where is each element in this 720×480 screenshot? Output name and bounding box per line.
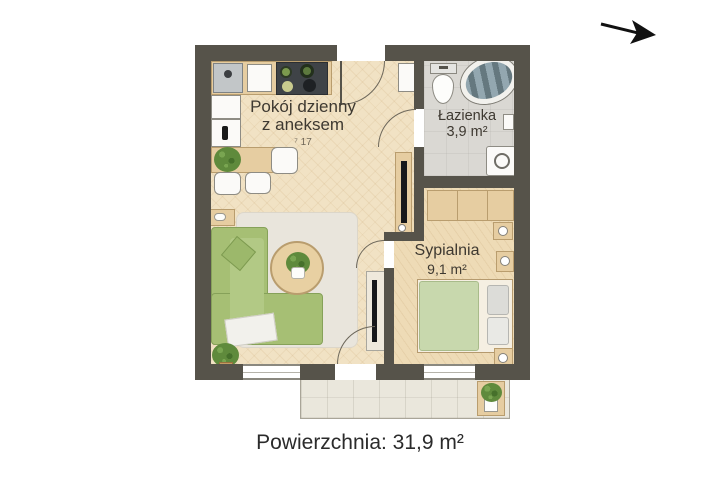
wall-bathroom-bottom [424, 176, 514, 188]
lamp-icon [498, 226, 508, 236]
burner-icon [282, 81, 293, 92]
bed-duvet [419, 281, 479, 351]
cutting-board [247, 64, 272, 92]
wardrobe-divider [457, 191, 458, 220]
balcony-door-opening [335, 364, 376, 380]
bed-pillow [487, 317, 509, 345]
wardrobe-divider [487, 191, 488, 220]
bathroom-label: Łazienka 3,9 m² [438, 108, 496, 140]
sink-faucet-icon [224, 70, 232, 78]
dining-chair [214, 172, 241, 195]
floor-plan-page: Pokój dzienny z aneksem ⁷ 17 Łazienka 3,… [0, 0, 720, 480]
bedroom-area: 9,1 m² [415, 260, 480, 278]
bedroom-label: Sypialnia 9,1 m² [415, 242, 480, 278]
total-area-caption: Powierzchnia: 31,9 m² [256, 431, 464, 455]
washer-door-icon [494, 153, 510, 169]
side-table-item [214, 213, 226, 221]
burner-icon [303, 79, 316, 92]
living-room-label: Pokój dzienny z aneksem ⁷ 17 [250, 98, 356, 152]
wall-right [514, 45, 530, 380]
living-room-name-line1: Pokój dzienny [250, 98, 356, 116]
plant-pot [291, 267, 305, 279]
living-room-window [243, 364, 300, 380]
living-room-area-note: ⁷ 17 [250, 134, 356, 152]
wall-corridor [414, 147, 424, 232]
wall-bathroom-left [414, 61, 424, 109]
tv-icon [401, 161, 407, 223]
lamp-icon [500, 256, 510, 266]
bathroom-area: 3,9 m² [438, 124, 496, 140]
entrance-opening [337, 45, 385, 61]
fridge-handle-icon [222, 126, 228, 140]
north-arrow-icon [598, 14, 660, 52]
kitchen-sink [213, 63, 243, 93]
bedroom-window [424, 364, 475, 380]
wall-stub [384, 232, 424, 241]
bed-pillow [487, 285, 509, 315]
bathroom-wall-cabinet [503, 114, 514, 130]
table-plant [214, 147, 241, 172]
bedroom-name: Sypialnia [415, 242, 480, 260]
wall-left [195, 45, 211, 380]
dining-chair [245, 172, 271, 194]
burner-icon [280, 66, 292, 78]
living-room-name-line2: z aneksem [250, 116, 356, 134]
balcony-plant [481, 383, 502, 402]
upper-cabinet [211, 95, 241, 119]
bathroom-name: Łazienka [438, 108, 496, 124]
bedroom-door-opening [384, 241, 394, 268]
lamp-icon [498, 353, 508, 363]
wardrobe [427, 190, 514, 221]
console-knob [398, 224, 406, 232]
wall-bedroom-left [384, 268, 394, 364]
burner-icon [300, 64, 314, 78]
toilet-slot-icon [439, 66, 448, 69]
